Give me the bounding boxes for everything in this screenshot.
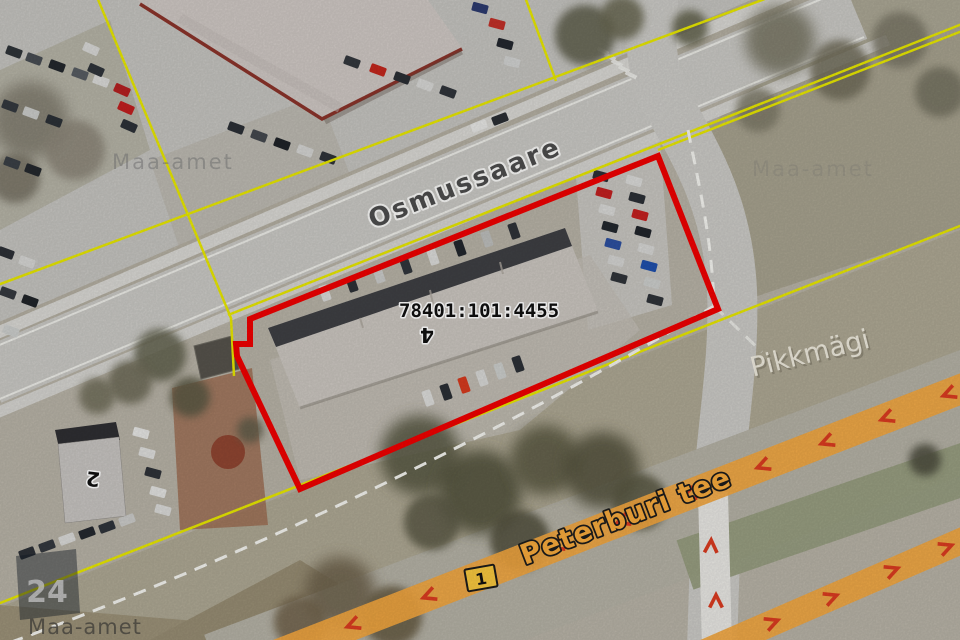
aerial-map-viewport[interactable]: 24 Osmussaare 78401:101:4455 4 2 Pikkmäg… <box>0 0 960 640</box>
aerial-grain-overlay <box>0 0 960 640</box>
